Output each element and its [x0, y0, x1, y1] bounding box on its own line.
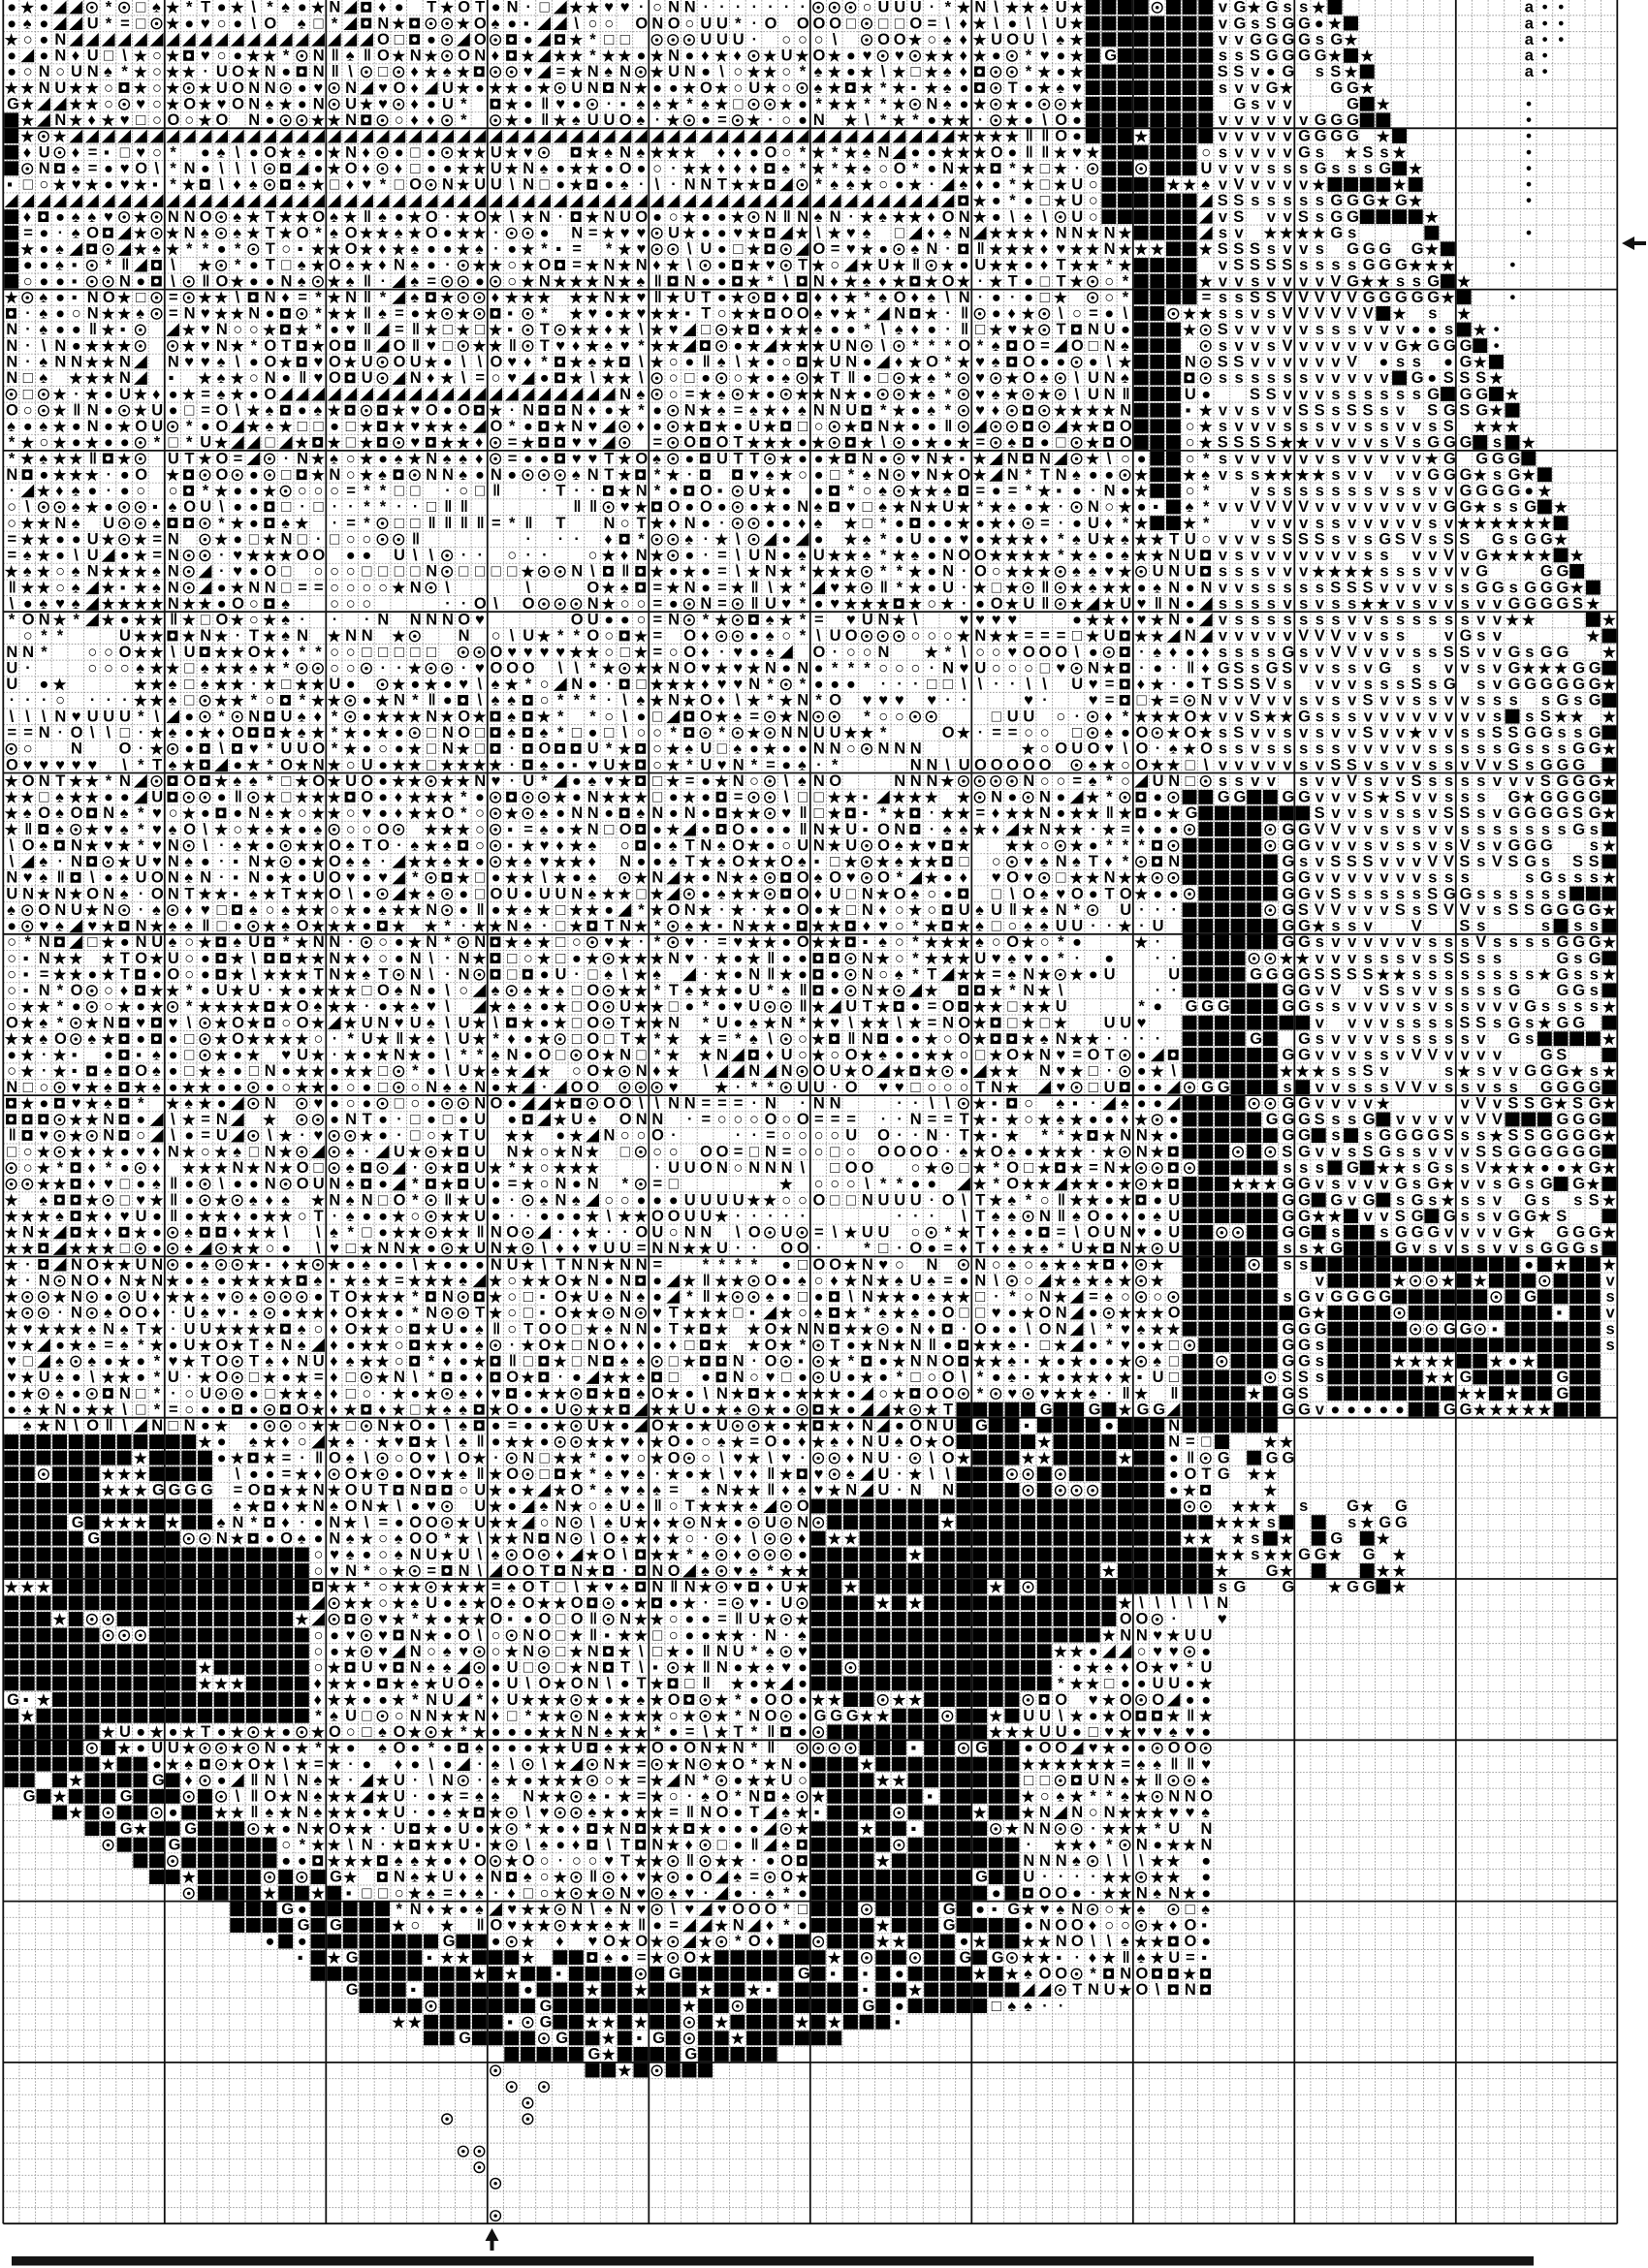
svg-text:●♠●U*=□●♥○●\O♠□*NO♠●▪\○○ONO○UU: ●♠●U*=□●♥○●\O♠□*NO♠●▪\○○ONO○UU*·OOOO□□□O… [7, 15, 1564, 32]
svg-text:O♠*N♥♥\O○OUN♥U♠\U\●□OTN*U●♠N*♥: O♠*N♥♥\O○OUN♥U♠\U\●□OTN*U●♠N*♥\\=NO□□UU♥… [6, 1014, 1585, 1031]
svg-text:···○···♠□*○*●N*‖●\♠♠○***·\♠NO♦: ···○···♠□*○*●N*‖●\♠♠○***·\♠NO♦\*N*O♥♥♥♥·… [10, 692, 1601, 709]
svg-text:U●♠□♠·□U●●●♥\♠*○N●·□♦♥♥N**●●●·: U●♠□♠·□U●●●♥\♠*○N●·□♦♥♥N**●●●···□□\\··\\… [6, 676, 1600, 693]
svg-text:♦●♠UO♠●U\OON\●T□‖●●*□●●UU●: ♦●♠UO♠●U\OON\●T□‖●●*□●●UU● [314, 1675, 1195, 1692]
svg-text:●♥♠♥N♠♠‖□●♠O●*·N♠·□TN*♠▪N●♦♥○*: ●♥♠♥N♠♠‖□●♠O●*·N♠·□TN*♠▪N●♦♥○*♠□○♠♠UU···… [7, 918, 1599, 935]
svg-text:●●♠♠●♦OO○·○○♥T‖·●ONNN♠\\\●: ●●♠♠●♦OO○·○○♥T‖·●ONNN♠\\\● [281, 1852, 1211, 1870]
svg-text:ONT*NO♠♠*□OUO●N♥·U*●♠♥□=●N○\♠N: ONT*NO♠♠*□OUO●N♥·U*●♠♥□=●N○\♠NONNNN○○=♠*… [22, 772, 1601, 790]
svg-text:==N·O\\□·♠●♦O♠*●●□NO□♠♠*□●□\○○: ==N·O\\□·♠●♦O♠*●●□NO□♠♠*□●□\○○**NNUU*O·=… [8, 724, 1601, 741]
svg-text:♠ONUN·♠♦♥□♠○♠○●♠N●‖●♠□●*ON··●O: ♠ONUN·♠♦♥□♠○♠○●♠N●‖●♠□●*ON··●O●□N♦○○U♠U‖… [7, 901, 1601, 919]
svg-text:●·▪●▪♠●□●♥U·●N●\**♠N●O□ON□*N♦U: ●·▪●▪♠●□●♥U·●N●\**♠N●O□ON□*N♦U○○O♠●●○□ON… [7, 1047, 1567, 1064]
svg-text:G○*\N·U▪\♠●♦\TN♦□●‖♠·♦*N●N: G○*\N·U▪\♠●♦\TN♦□●‖♠·♦*N●N [169, 1837, 1213, 1854]
svg-text:●‖♠N♠●U·●♠\♥♠●=‖NO●T♠▪NN○N♥♥♠: ●‖♠N♠●U·●♠\♥♠●=‖NO●T♠▪NN○N♥♥♠ [169, 1804, 1211, 1821]
svg-text:○NO·●\♥*UUO*●○●□N□·OU*○♠U□♠●●●: ○NO·●\♥*UUO*●○●□N□·OU*○♠U□♠●●●NN○NNN○OUO… [23, 740, 1601, 758]
svg-text:♠O♠ON♠*♥○●●N♠○○♥●♦O*○♠●NN●♠N●N: ♠O♠ON♠*♥○●●N♠○○♥●♦O*○♠●NN●♠N●N●♥‖□▪*·=♦N… [23, 804, 1601, 822]
svg-text:N♠=●♥O\*N●\\\●O♦♦□●●UN♠●●O●○·♦: N♠=●♥O\*N●\\\●O♦♦□●●UN♠●●O●○·♦♦♦♠**♠○O*●… [39, 160, 1532, 177]
svg-text:N♦♥□○O○ON●N○♦♦*●‖♠UUO♠·●=·○●N\: N♦♥□○O○ON●N○♦♦*●‖♠UUO♠·●=·○●N\**●·●\O●vv… [54, 111, 1532, 129]
svg-text:N□♠N▪♠○N●‖♥OUN♦\=○♥●\\○□●○●♠T‖: N□♠N▪♠○N●‖♥OUN♦\=○♥●\\○□●○●♠T‖●□♠*♥O♠\UN… [6, 369, 1486, 387]
svg-text:♦♥□●♠‖●\●●NOUN♠●*U●=○N●N*=□○○○: ♦♥□●♠‖●\●●NOUN♠●*U●=○N●N*=□○○○\**●●*O●GG… [87, 1176, 1585, 1193]
svg-text:♥□♠♠●●*♥TOT♠♦NU♦♠○*♦●‖□□N♠♠□N·: ♥□♠♠●●*♥TOT♠♦NU♦♠○*♦●‖□□N♠♠□N·O▪*●NNO♠▪●… [7, 1353, 1517, 1370]
svg-text:□○♦●♥♦N○♠□N♠·UUN○N□○○OO=□N=○○□: □○♦●♥♦N○♠□N♠·UUN○N□○○OO=□N=○○□○OOOO·♠O♠●… [7, 1143, 1601, 1160]
svg-text:N·♠NNNN♥♥♠\●O♥OUOU●\\O♥♦*♠\○●‖: N·♠NNNN♥♥♠\●O♥OUOU●\\O♥♦*♠\○●‖♠\●○UN●♦O*… [6, 354, 1472, 371]
svg-text:=●●U=N●□N□·□○○‖···♦*♠·\●●♠*●U●: =●●U=N●□N□·□○○‖···♦*♠·\●●♠*●U●●♥●♦*♠U♠TU… [8, 530, 1553, 548]
svg-text:♦U♦=▪□♥○*●♠\●O♠●N♦●□●U♥♠N♠♦♦●O: ♦U♦=▪□♥○*●♠\●O♠●N♦●□●U♥♠N♠♦♦●O○**♠N●●O●‖… [23, 143, 1532, 161]
svg-text:\●♠♥♠N●O○♠○○○··O\ON○○=●N=‖U♥*●: \●♠♥♠N●O○♠○○○··O\ON○○=●N=‖U♥*●♥○·●OU‖U♥‖… [10, 595, 1583, 613]
svg-text:‖♠♥♠*♥♠O\○♠●♠○○O○▪=♠●N□O●●O●●●: ‖♠♥♠*♥♠O\○♠●♠○○O○▪=♠●N□O●●O●●●‖NU▪ON·♠♠♦… [24, 821, 1599, 838]
svg-text:○N♠U♠*●♠·=*□□‖‖‖‖=*‖TN○T♦N●·●●: ○N♠U♠*●♠·=*□□‖‖‖‖=*‖TN○T♦N●·●●♦♠□*●●●●♦=… [7, 515, 1454, 532]
svg-text:N●·●OO●□N○♠NN♠●N●♠NT*·♥♠○●□*♠N: N●·●OO●□N○♠NN♠●N●♠NT*·♥♠○●□*♠N♥NON*TN♠●●… [6, 466, 1520, 484]
svg-text:●♠O\=·●♦●\●·♠\\N=NO*N●=♠♠‖‖♥: ●♠O\=·●♦●\●·♠\\N=NO*N●=♠♠‖‖♥ [152, 1755, 1211, 1773]
svg-text:O○‖N●U●□=O\♠●♠♥O●O·NN♦●*●N♠=♠♦: O○‖N●U●□=O\♠●♠♥O●O·NN♦●*●N♠=♠♦♠NNU*●♠*♥♦… [6, 401, 1488, 419]
svg-text:‖♥N○\●=U\·♥●·□○TU●N○○O···=○○○○: ‖♥N○\●=U\·♥●·□○TU●N○○O···=○○○○UO··N·T▪**… [9, 1127, 1601, 1145]
svg-text:●UUN●*●♠O●*●♠●●●U♠O●ONN*‖▪G●OO: ●UUN●*●♠O●*●♠●●●U♠O●ONN*‖▪G●OO♥●●OO [136, 1740, 1196, 1757]
svg-text:●●N♦U□\○♥○●*N‖♠‖ONON♦*●N●♦♦UO●: ●●N♦U□\○♥○●*N‖♠‖ONON♦*●N●♦♦UO●♥♥♦●*♥●Gss… [7, 47, 1548, 65]
svg-text:\\\N♥UUU*\●*NU♠♦*●NO♠**○\●□O♠=: \\\N♥UUU*\●*NU♠♦*●NO♠**○\●□O♠=N*○○□UU○·♦… [10, 708, 1551, 725]
svg-text:●○N○UN♠*○·UON●N‖\□♦♠♥=N♠NUN●\○: ●○N○UN♠*○·UON●N‖\□♦♠♥=N♠NUN●\○○*♠●\□♠♦*●… [7, 63, 1548, 80]
svg-text:○*●○●*O♠·●♠♥\♠♠●□OU□●*●♥U‖UT●=: ○*●○●*O♠·●♠♥\♠♠●□OU□●*●♥U‖UT●=O□U*●GGGGG… [7, 998, 1599, 1016]
svg-text:○▪NTOU○●\N♦○●N\·N□○□●N♥·●‖●●N○: ○▪NTOU○●\N♦○●N\·N□○□●N♥·●‖●●N○*U♥♠♥●*·●·… [7, 950, 1601, 967]
svg-text:●♠♠**●*T○▪O♦♠●●♠·●*▪=*♥\U●□O=♥: ●♠♠**●*T○▪O♦♠●●♠·●*▪=*♥\U●□O=♥●♠N·‖♦♥NSS… [39, 240, 1423, 258]
svg-text:○U♥N♠♠●U□□NT\▪‖N●♠♥●·●♠♦O♥*U: ○U♥N♠♠●U□□NT\▪‖N●♠♥●·●♠♦O♥*U [314, 1659, 1213, 1677]
svg-text:♠□♥‖●♠♦♠N♠N□O*‖U●·♠N♠○○●●●UUUU: ♠□♥‖●♠♦♠N♠N□O*‖U●·♠N♠○○●●●UUUU○○O□□NUUU·… [39, 1191, 1599, 1209]
svg-text:*ON*●‖□O○♠···NNNNO♥OU●●○=N*♠*=: *ON*●‖□O○♠···NNNNO♥OU●●○=N*♠*=♥UN\♥♥♥♥●♦… [9, 612, 1503, 629]
svg-text:♠●♠●N●OU*●O♠□□●□♥♠O*●N♥♦●●U□○N: ♠●♠●N●OU*●O♠□□●□♥♠O*●N♥♦●●U□○N●●‖O○svvvs… [7, 418, 1454, 435]
svg-text:●♥♠*♠●N♥●○●□○●NO●OO\\NN===·N·N: ●♥♠*♠●N♥●○●□○●NO●OO\\NN===·N·NN··\\▪○♠▪·… [39, 1095, 1600, 1113]
svg-text:N·♠●●‖▪♥N○○*●♥‖=‖□□▪T♦\♥□♦♠●●*: N·♠●●‖▪♥N○○*●♥‖=‖□□▪T♦\♥□♦♠●●*\♠♦●·‖□♥TN… [6, 321, 1499, 338]
svg-text:\O♠N♥*♥N\·♠●O♠TO·♠♠○▪♥♦♠○●♠TN♠: \O♠N♥*♥N\·♠●O♠TO·♠♠○▪♥♦♠○●♠TN♠O●○UNUO♠♥○… [10, 836, 1599, 854]
svg-text:\♠·NU♥N♠●·▪N●O♠♠·♠●♠♥♦N●●♠T♠OO: \♠·NU♥N♠●·▪N●O♠♠·♠●♠♥♦N●●♠T♠OO♠▪□♠□○♥♠N♠… [10, 853, 1600, 870]
svg-text:▪□○♥●♥▪*\♦♠♠□♦♥*□ONUU\N□●●♠·\·: ▪□○♥●♥▪*\♦♠♠□♦♥*□ONUU\N□●●♠·\·NNT*♠♠○●·♠… [7, 176, 1532, 194]
svg-text:O♥♥♥♥♥\*T♠●*ON○U●□·♠●▪♥U○*U♥N*: O♥♥♥♥♥\*T♠●*ON○U●□·♠●▪♥U○*U♥N*=●♠·*NN\UO… [6, 756, 1585, 773]
svg-text:▪□□○♠=♦♠·♦□○N♥♠♥·●·♠*●●OO●·N♠N: ▪□□○♠=♦♠·♦□○N♥♠♥·●·♠*●●OO●·N♠N● [346, 1884, 1211, 1902]
svg-text:●*●□U○SSsssssGGGG•: ●*●□U○SSsssssGGGG• [992, 192, 1532, 209]
svg-text:●●♠▪*‖\*●T□♠O♠♦N♠●·○O=NN♦\●♥T○: ●●♠▪*‖\*●T□♠O♠♦N♠●·○O=NN♦\●♥T○U‖●U●♦T*vS… [23, 257, 1516, 274]
svg-text:○*N□●NU♠○♠U*NN·○●N*N♠□○♥·*♥·=♥: ○*N□●NU♠○♠U*NN·○●N*N♠□○♥·*♥·=♥●O▪♠○*♠○O○… [7, 933, 1601, 951]
svg-text:G●*N♦●♠♥N\♠N♥\♥♥OOO*□G●▪G♥♠N○♠: G●*N♦●♠♥N\♠N♥\♥♥OOO*□G●▪G♥♠N○♠□♠ [281, 1901, 1210, 1918]
svg-text:N□○♥♠♠●●●●○●○●□○N♠♠N●·OO♥·**UU: N□○♥♠♠●●●●○●○●□○N♠♠N●·OO♥·**UU·O♥♥□○○○TN… [6, 1079, 1600, 1096]
svg-text:UNNON♠·ONT▪♠TO\●♠●□OU●UUN♠□●♠O: UNNON♠·ONT▪♠TO\●♠●□OU●UUN♠□●♠O♦U□NO♠○●□\… [6, 885, 1566, 902]
svg-text:GG●NO·U●U●*●♦N●●●▪NN·*UN: GG●NO·U●U●*●♦N●●●▪NN·*UN [120, 1820, 1213, 1838]
